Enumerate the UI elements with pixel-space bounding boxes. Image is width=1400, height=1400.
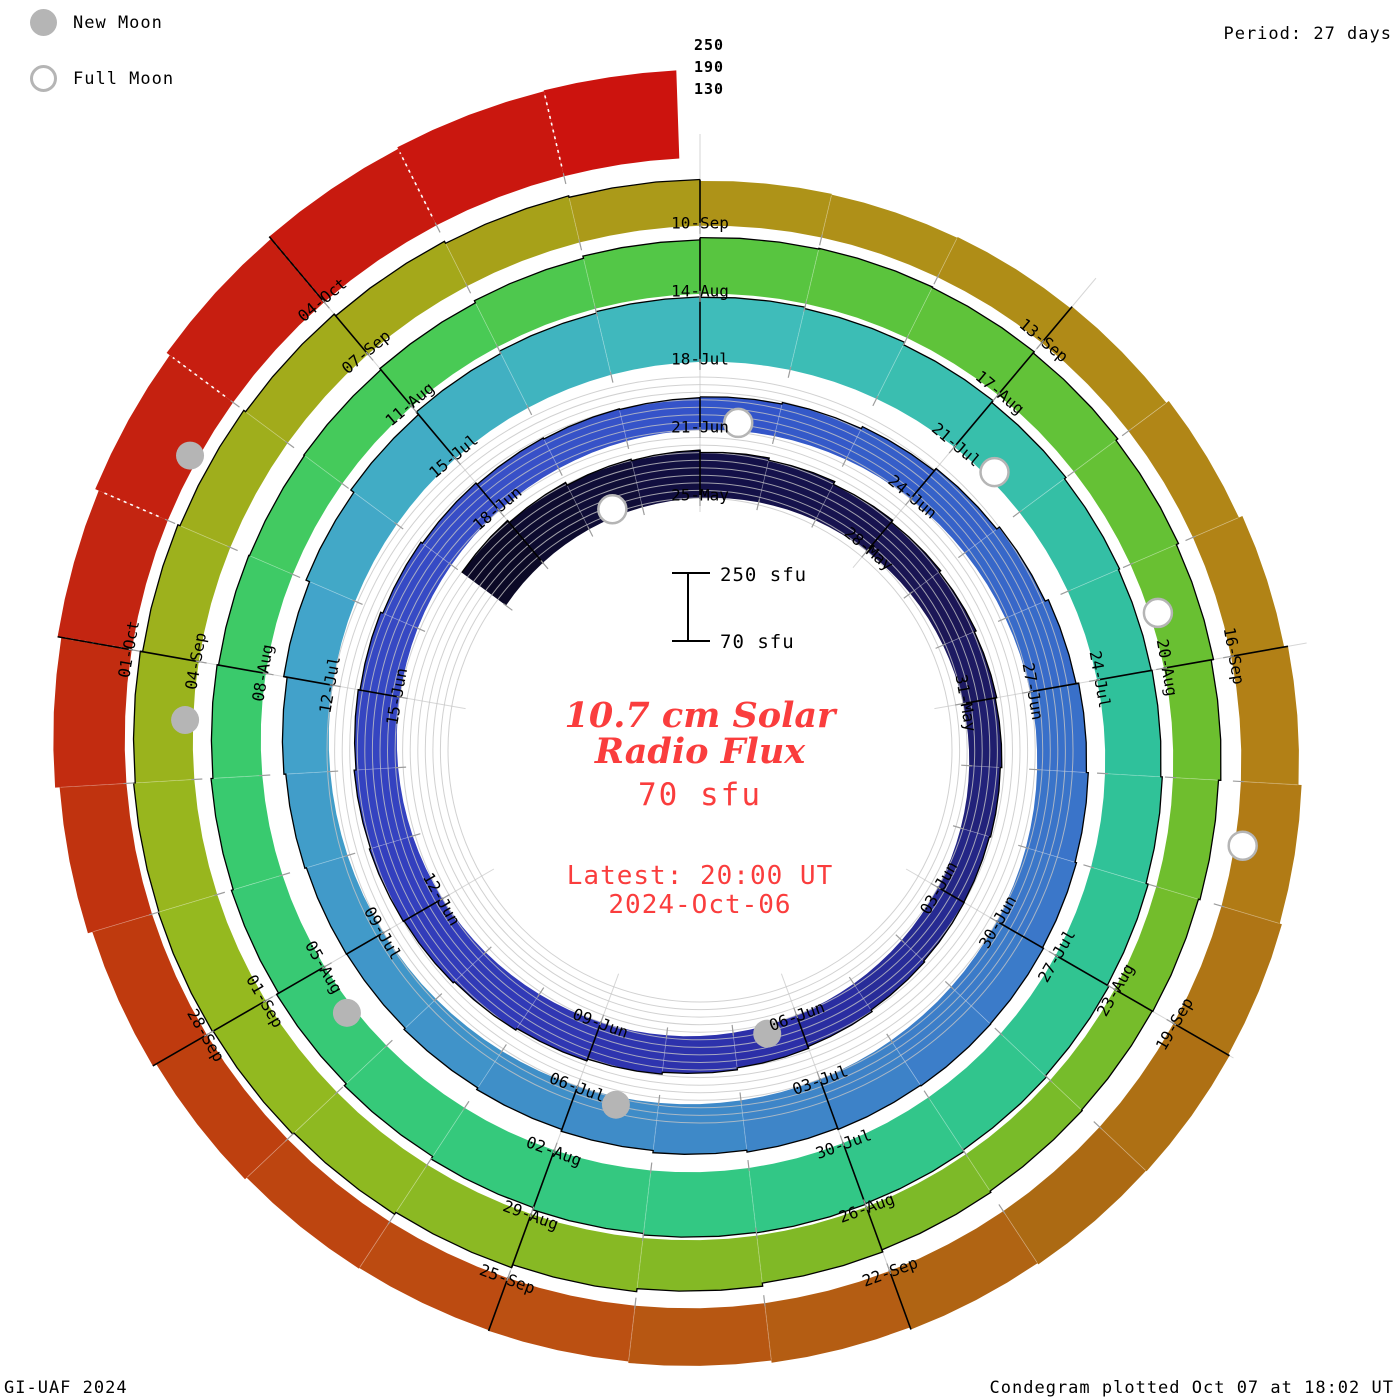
day-bar-31-Jul: [643, 1168, 756, 1237]
day-bar-24-Sep: [489, 1278, 635, 1361]
new-moon-icon: [30, 9, 57, 36]
date-label-14-Aug: 14-Aug: [671, 281, 729, 300]
day-bar-28-Jun: [1026, 770, 1088, 863]
chart-title: 10.7 cm Solar Radio Flux: [565, 698, 836, 770]
day-bar-22-Sep: [765, 1271, 911, 1363]
full-moon-marker-19-Aug: [1144, 599, 1172, 627]
day-bar-27-Aug: [637, 1236, 763, 1292]
new-moon-label: New Moon: [73, 13, 163, 33]
day-bar-06-Oct: [544, 70, 680, 176]
day-bar-09-Sep: [569, 180, 700, 243]
full-moon-label: Full Moon: [73, 69, 174, 89]
full-moon-marker-21-Jul: [981, 458, 1009, 486]
date-label-25-May: 25-May: [671, 486, 729, 505]
flux-tick-190: 190: [694, 58, 724, 76]
moon-legend: New Moon Full Moon: [30, 9, 174, 92]
flux-scale-bar: [672, 573, 710, 641]
credit-right: Condegram plotted Oct 07 at 18:02 UT: [990, 1378, 1394, 1398]
date-label-21-Jun: 21-Jun: [671, 418, 729, 437]
new-moon-marker-04-Aug: [333, 999, 361, 1027]
date-label-18-Jul: 18-Jul: [671, 349, 729, 368]
day-bar-12-Jul: [284, 582, 356, 686]
latest-annotation: Latest: 20:00 UT 2024-Oct-06: [567, 862, 833, 920]
day-bar-02-Sep: [134, 780, 218, 913]
period-label: Period: 27 days: [1223, 24, 1392, 44]
day-bar-21-Aug: [1156, 778, 1218, 900]
full-moon-icon: [30, 65, 57, 92]
date-label-10-Sep: 10-Sep: [671, 213, 729, 232]
day-bar-23-Sep: [628, 1303, 771, 1366]
credit-left: GI-UAF 2024: [4, 1378, 128, 1398]
condegram-page: { "legend": { "new_moon_label": "New Moo…: [0, 0, 1400, 1400]
full-moon-marker-23-May: [598, 495, 626, 523]
day-bar-06-Aug: [211, 776, 282, 890]
latest-time: Latest: 20:00 UT: [567, 862, 833, 891]
chart-title-line2: Radio Flux: [565, 734, 836, 770]
latest-date: 2024-Oct-06: [567, 891, 833, 920]
flux-tick-130: 130: [694, 80, 724, 98]
new-moon-marker-02-Oct: [176, 442, 204, 470]
chart-subtitle: 70 sfu: [638, 777, 762, 813]
chart-title-line1: 10.7 cm Solar: [565, 698, 836, 734]
full-moon-marker-17-Sep: [1229, 832, 1257, 860]
scale-top-label: 250 sfu: [720, 564, 807, 586]
day-bar-25-Jul: [1091, 774, 1162, 884]
new-moon-marker-05-Jul: [602, 1091, 630, 1119]
scale-bottom-label: 70 sfu: [720, 631, 795, 653]
new-moon-marker-03-Sep: [171, 706, 199, 734]
flux-tick-250: 250: [694, 36, 724, 54]
day-bar-04-Jul: [653, 1100, 747, 1154]
day-bar-10-Jul: [286, 772, 348, 869]
